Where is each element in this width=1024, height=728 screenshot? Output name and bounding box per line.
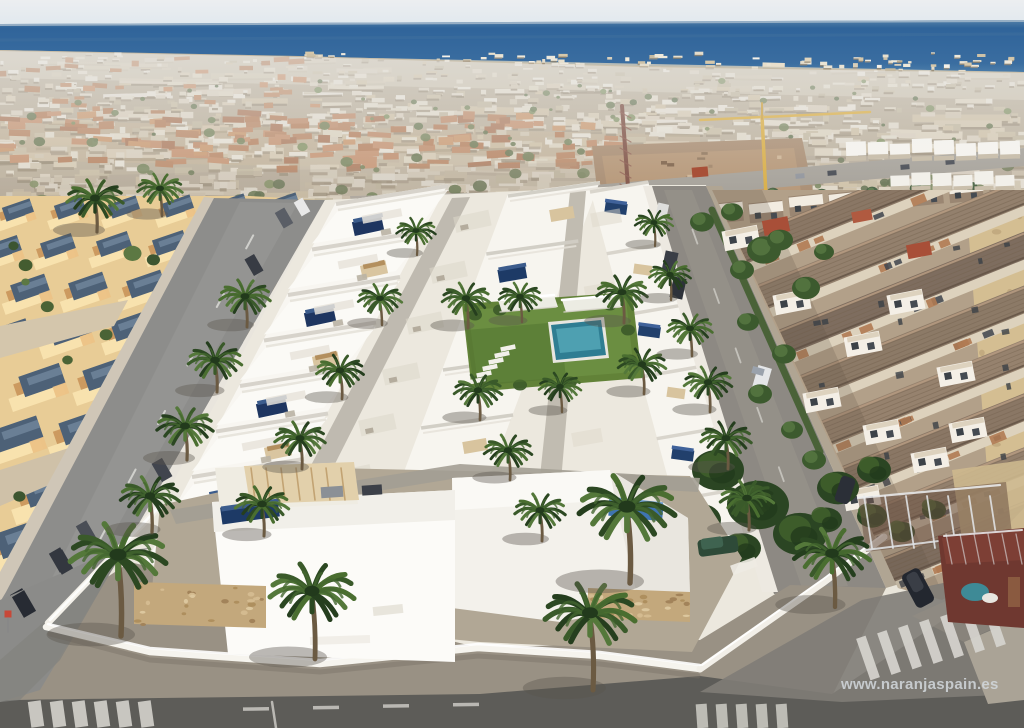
svg-text:www.naranjaspain.es: www.naranjaspain.es	[840, 676, 999, 693]
